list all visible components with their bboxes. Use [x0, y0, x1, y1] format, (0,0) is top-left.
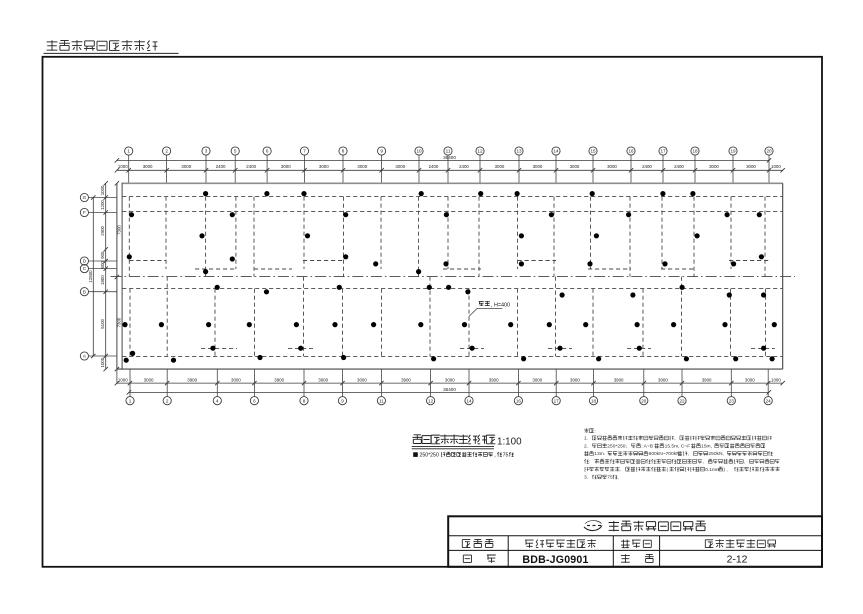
- svg-text:2400: 2400: [674, 164, 684, 169]
- svg-text:3000: 3000: [181, 164, 191, 169]
- svg-text:600kN~700kN: 600kN~700kN: [649, 451, 681, 457]
- svg-text:5100: 5100: [100, 318, 105, 328]
- svg-text:3900: 3900: [274, 377, 284, 382]
- svg-text:1: 1: [129, 398, 132, 403]
- svg-text:250*250: 250*250: [420, 453, 439, 459]
- svg-text:15.5m, C~F: 15.5m, C~F: [665, 443, 691, 449]
- svg-text:17: 17: [554, 398, 560, 403]
- svg-text:2400: 2400: [459, 164, 469, 169]
- svg-text:,: ,: [688, 452, 689, 457]
- svg-text:B: B: [83, 289, 86, 294]
- svg-text:3900: 3900: [489, 377, 499, 382]
- svg-text:14: 14: [553, 149, 559, 154]
- svg-text:3000: 3000: [281, 164, 291, 169]
- svg-text:24: 24: [766, 398, 772, 403]
- svg-text:6: 6: [266, 149, 269, 154]
- svg-text:250kN,: 250kN,: [708, 451, 724, 457]
- svg-text:3900: 3900: [401, 377, 411, 382]
- svg-text:3000: 3000: [746, 164, 756, 169]
- svg-text::: :: [594, 429, 595, 434]
- svg-text:.: .: [620, 468, 621, 473]
- svg-text:3000: 3000: [709, 164, 719, 169]
- svg-text:BDB-JG0901: BDB-JG0901: [522, 554, 588, 566]
- svg-text:1000: 1000: [100, 185, 105, 195]
- svg-text:15m,: 15m,: [701, 443, 712, 449]
- svg-text:3000: 3000: [745, 377, 755, 382]
- svg-text:23: 23: [729, 398, 735, 403]
- svg-text:1000: 1000: [771, 164, 781, 169]
- svg-text:,: ,: [703, 460, 704, 465]
- svg-text:3000: 3000: [607, 164, 617, 169]
- svg-text:18: 18: [591, 398, 597, 403]
- svg-text:18: 18: [692, 149, 698, 154]
- svg-text:1: 1: [127, 149, 130, 154]
- svg-text:1000: 1000: [100, 357, 105, 367]
- svg-text:7300: 7300: [117, 317, 122, 327]
- svg-text:20: 20: [766, 149, 772, 154]
- svg-text:5: 5: [234, 149, 237, 154]
- svg-text:2.: 2.: [584, 443, 588, 449]
- svg-text:36400: 36400: [443, 387, 456, 392]
- svg-text:3000: 3000: [395, 164, 405, 169]
- svg-text:3.: 3.: [584, 475, 588, 481]
- svg-text:3000: 3000: [570, 164, 580, 169]
- svg-text:) ,: ) ,: [723, 467, 727, 473]
- svg-text:900: 900: [100, 251, 105, 259]
- svg-text:13m.: 13m.: [594, 451, 605, 457]
- svg-text:3000: 3000: [318, 377, 328, 382]
- svg-text:1000: 1000: [118, 377, 128, 382]
- svg-text:8: 8: [303, 398, 306, 403]
- svg-text:2400: 2400: [642, 164, 652, 169]
- svg-text:3000: 3000: [319, 164, 329, 169]
- svg-text:20: 20: [641, 398, 647, 403]
- svg-text:: A~B: : A~B: [641, 443, 653, 449]
- svg-text:17: 17: [660, 149, 666, 154]
- svg-text:2: 2: [165, 149, 168, 154]
- svg-text:3900: 3900: [187, 377, 197, 382]
- svg-text:2400: 2400: [216, 164, 226, 169]
- svg-text:14: 14: [466, 398, 472, 403]
- svg-text:2: 2: [166, 398, 169, 403]
- svg-text:1800: 1800: [100, 275, 105, 285]
- svg-text:10: 10: [416, 149, 422, 154]
- svg-text:16: 16: [628, 149, 634, 154]
- svg-text:75: 75: [607, 475, 613, 481]
- svg-text:3000: 3000: [533, 164, 543, 169]
- svg-text::: :: [589, 460, 590, 465]
- svg-text:22: 22: [679, 398, 685, 403]
- svg-text:,: ,: [744, 460, 745, 465]
- svg-text:250*250;: 250*250;: [607, 443, 627, 449]
- svg-text:9: 9: [341, 398, 344, 403]
- svg-text:2900: 2900: [100, 225, 105, 235]
- svg-text:3000: 3000: [357, 164, 367, 169]
- svg-text:0.1mm: 0.1mm: [705, 467, 720, 473]
- svg-text:3000: 3000: [495, 164, 505, 169]
- svg-text:11: 11: [446, 149, 451, 154]
- svg-text:.: .: [618, 476, 619, 481]
- svg-text:12500: 12500: [88, 270, 93, 283]
- svg-text:,: ,: [494, 453, 495, 459]
- svg-text:3000: 3000: [570, 377, 580, 382]
- svg-text:13: 13: [516, 149, 522, 154]
- svg-text:3000: 3000: [445, 377, 455, 382]
- svg-text:9: 9: [380, 149, 383, 154]
- svg-text:1200: 1200: [100, 200, 105, 210]
- svg-text:2-12: 2-12: [727, 555, 748, 566]
- svg-text:F: F: [83, 210, 86, 215]
- svg-text:600: 600: [100, 261, 105, 269]
- svg-text:1:100: 1:100: [497, 437, 522, 448]
- svg-text:4: 4: [216, 398, 219, 403]
- svg-text:3: 3: [205, 149, 208, 154]
- svg-text:3900: 3900: [614, 377, 624, 382]
- svg-text:75: 75: [503, 453, 509, 459]
- svg-text:12: 12: [428, 398, 434, 403]
- svg-text:15: 15: [590, 149, 596, 154]
- svg-text:1000: 1000: [118, 164, 128, 169]
- svg-text:19: 19: [730, 149, 736, 154]
- svg-text:11: 11: [379, 398, 384, 403]
- svg-text:16: 16: [516, 398, 522, 403]
- svg-text:12: 12: [477, 149, 483, 154]
- svg-text:G: G: [83, 195, 87, 200]
- svg-text:2400: 2400: [246, 164, 256, 169]
- svg-text:7300: 7300: [117, 225, 122, 235]
- svg-text:1000: 1000: [771, 377, 781, 382]
- svg-text:3000: 3000: [143, 164, 153, 169]
- svg-text:,: ,: [674, 437, 675, 442]
- svg-text:1.: 1.: [584, 436, 588, 442]
- svg-text:36400: 36400: [443, 155, 456, 160]
- svg-text:6: 6: [253, 398, 256, 403]
- svg-text:3000: 3000: [532, 377, 542, 382]
- svg-text:2400: 2400: [429, 164, 439, 169]
- svg-text:3900: 3900: [702, 377, 712, 382]
- svg-text:, H=400: , H=400: [491, 303, 510, 309]
- svg-text:3000: 3000: [357, 377, 367, 382]
- svg-text:3000: 3000: [144, 377, 154, 382]
- svg-text:8: 8: [342, 149, 345, 154]
- svg-text:3000: 3000: [658, 377, 668, 382]
- svg-text:3000: 3000: [231, 377, 241, 382]
- svg-text:7: 7: [303, 149, 306, 154]
